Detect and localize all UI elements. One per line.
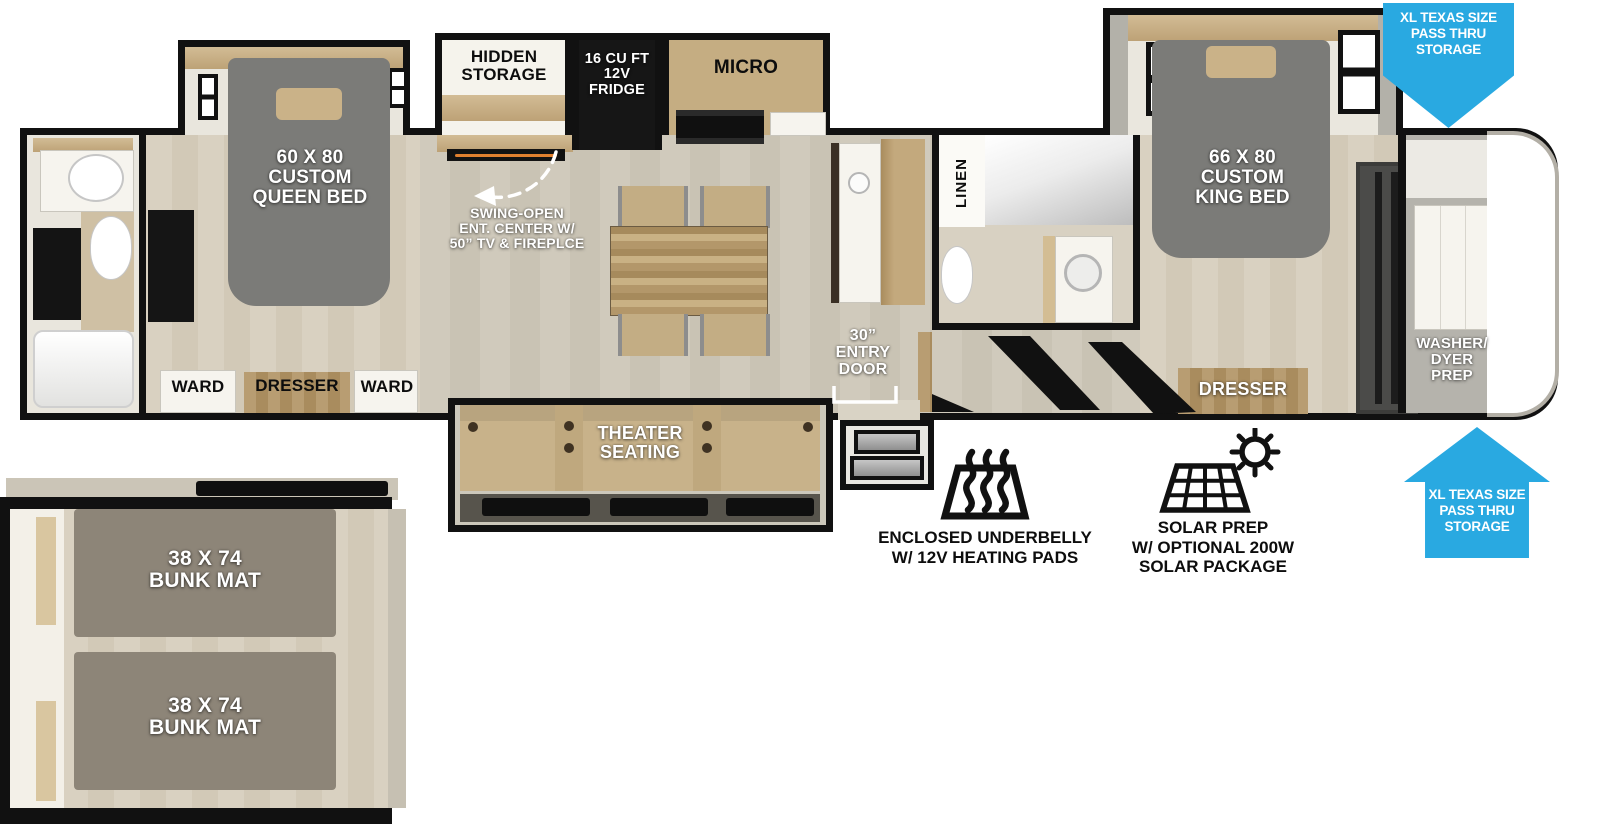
washer-prep-label: WASHER/ DYER PREP	[1406, 336, 1498, 384]
pass-thru-label: XL TEXAS SIZE PASS THRU STORAGE	[1383, 10, 1514, 59]
wall-bath-bedroom	[139, 135, 146, 413]
entry-door-label: 30” ENTRY DOOR	[822, 328, 904, 379]
entry-door-threshold	[838, 400, 920, 420]
ward-left-label: WARD	[152, 378, 244, 396]
bunk-room-edge	[388, 509, 406, 808]
rear-dresser-label: DRESSER	[240, 377, 354, 395]
bunk-room-wall-bottom	[0, 808, 392, 824]
slide-window	[610, 498, 708, 516]
entry-steps	[840, 420, 934, 490]
floorplan-canvas: XL TEXAS SIZE PASS THRU STORAGE XL TEXAS…	[0, 0, 1600, 824]
mid-bath-toilet	[941, 246, 973, 304]
slide-window	[726, 498, 814, 516]
kitchen-island-counter	[839, 143, 881, 303]
cabinet-door	[36, 701, 56, 801]
fridge-label: 16 CU FT 12V FRIDGE	[574, 52, 660, 98]
hidden-storage-shelf	[442, 95, 565, 121]
cooktop	[676, 110, 764, 144]
kitchen-sink	[848, 172, 870, 194]
dining-chair	[618, 314, 688, 356]
cupholder	[468, 422, 478, 432]
cabinet-divider	[1440, 206, 1441, 329]
fireplace-glow	[455, 154, 557, 157]
mid-bath-shower	[985, 135, 1133, 225]
hidden-storage-label: HIDDEN STORAGE	[442, 48, 566, 84]
bunk-room-vent	[196, 481, 388, 496]
king-bed-label: 66 X 80 CUSTOM KING BED	[1155, 148, 1330, 208]
rear-bath-toilet	[90, 216, 132, 280]
dining-table	[610, 226, 768, 316]
rear-bedroom-tv-unit	[148, 210, 194, 322]
island-side-panel	[831, 143, 839, 303]
step	[850, 456, 924, 480]
washer-prep-cabinet	[1414, 205, 1492, 330]
kitchen-island-wood	[881, 139, 925, 305]
bunk-room-wall-left	[0, 497, 10, 824]
mid-bath-vanity-side	[1043, 236, 1055, 323]
linen-label: LINEN	[954, 158, 970, 208]
heat-waves-icon	[928, 424, 1040, 524]
slide-window	[482, 498, 590, 516]
queen-slide-window-left	[198, 74, 218, 120]
linen-label-wrap: LINEN	[939, 140, 985, 226]
solar-caption: SOLAR PREP W/ OPTIONAL 200W SOLAR PACKAG…	[1108, 518, 1318, 577]
ward-right-label: WARD	[346, 378, 428, 396]
rear-bath-cabinet	[33, 228, 81, 320]
pass-thru-label: XL TEXAS SIZE PASS THRU STORAGE	[1404, 487, 1550, 536]
queen-slide-window-right	[388, 68, 408, 108]
dining-chair	[700, 314, 770, 356]
ent-center-note: SWING-OPEN ENT. CENTER W/ 50” TV & FIREP…	[428, 206, 606, 250]
dining-chair	[618, 186, 688, 228]
solar-panel-icon	[1155, 428, 1285, 523]
cupholder	[803, 422, 813, 432]
front-cap-upper-cabinet	[1406, 140, 1498, 198]
king-slide-window-right	[1338, 30, 1380, 114]
cabinet-door	[36, 517, 56, 625]
bunk-room-wall-top	[0, 497, 392, 509]
rear-bath-sink	[68, 154, 124, 202]
queen-bed-pillow	[276, 88, 342, 120]
step	[854, 430, 920, 454]
pass-thru-arrow-bottom: XL TEXAS SIZE PASS THRU STORAGE	[1404, 427, 1550, 558]
bunk-top-label: 38 X 74 BUNK MAT	[95, 548, 315, 593]
queen-bed-label: 60 X 80 CUSTOM QUEEN BED	[225, 148, 395, 208]
micro-label: MICRO	[668, 58, 824, 78]
wall-bedroom-cap	[1398, 135, 1406, 413]
theater-slide-front	[460, 494, 820, 522]
bunk-room-cabinets	[10, 509, 64, 808]
kitchen-counter-corner	[770, 112, 826, 136]
bunk-bottom-label: 38 X 74 BUNK MAT	[95, 695, 315, 740]
underbelly-caption: ENCLOSED UNDERBELLY W/ 12V HEATING PADS	[845, 528, 1125, 567]
rear-bath-tub	[33, 330, 134, 408]
front-dresser-label: DRESSER	[1178, 380, 1308, 399]
king-bed-pillow	[1206, 46, 1276, 78]
theater-seating-label: THEATER SEATING	[549, 424, 731, 462]
dining-chair	[700, 186, 770, 228]
hall-floor	[932, 330, 1140, 413]
mid-bath-sink	[1064, 254, 1102, 292]
cabinet-divider	[1465, 206, 1466, 329]
